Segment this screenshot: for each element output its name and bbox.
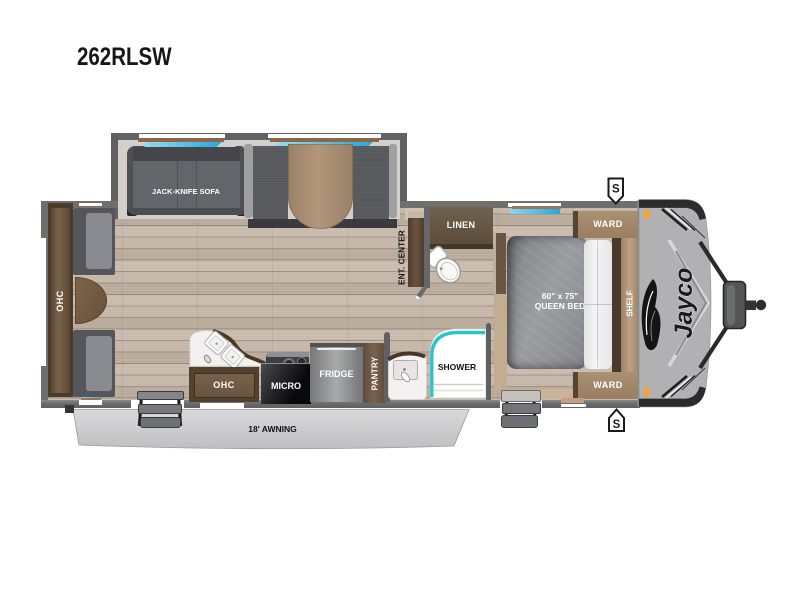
- svg-text:S: S: [613, 419, 621, 431]
- svg-text:S: S: [612, 184, 620, 196]
- svg-text:Jayco: Jayco: [670, 268, 698, 339]
